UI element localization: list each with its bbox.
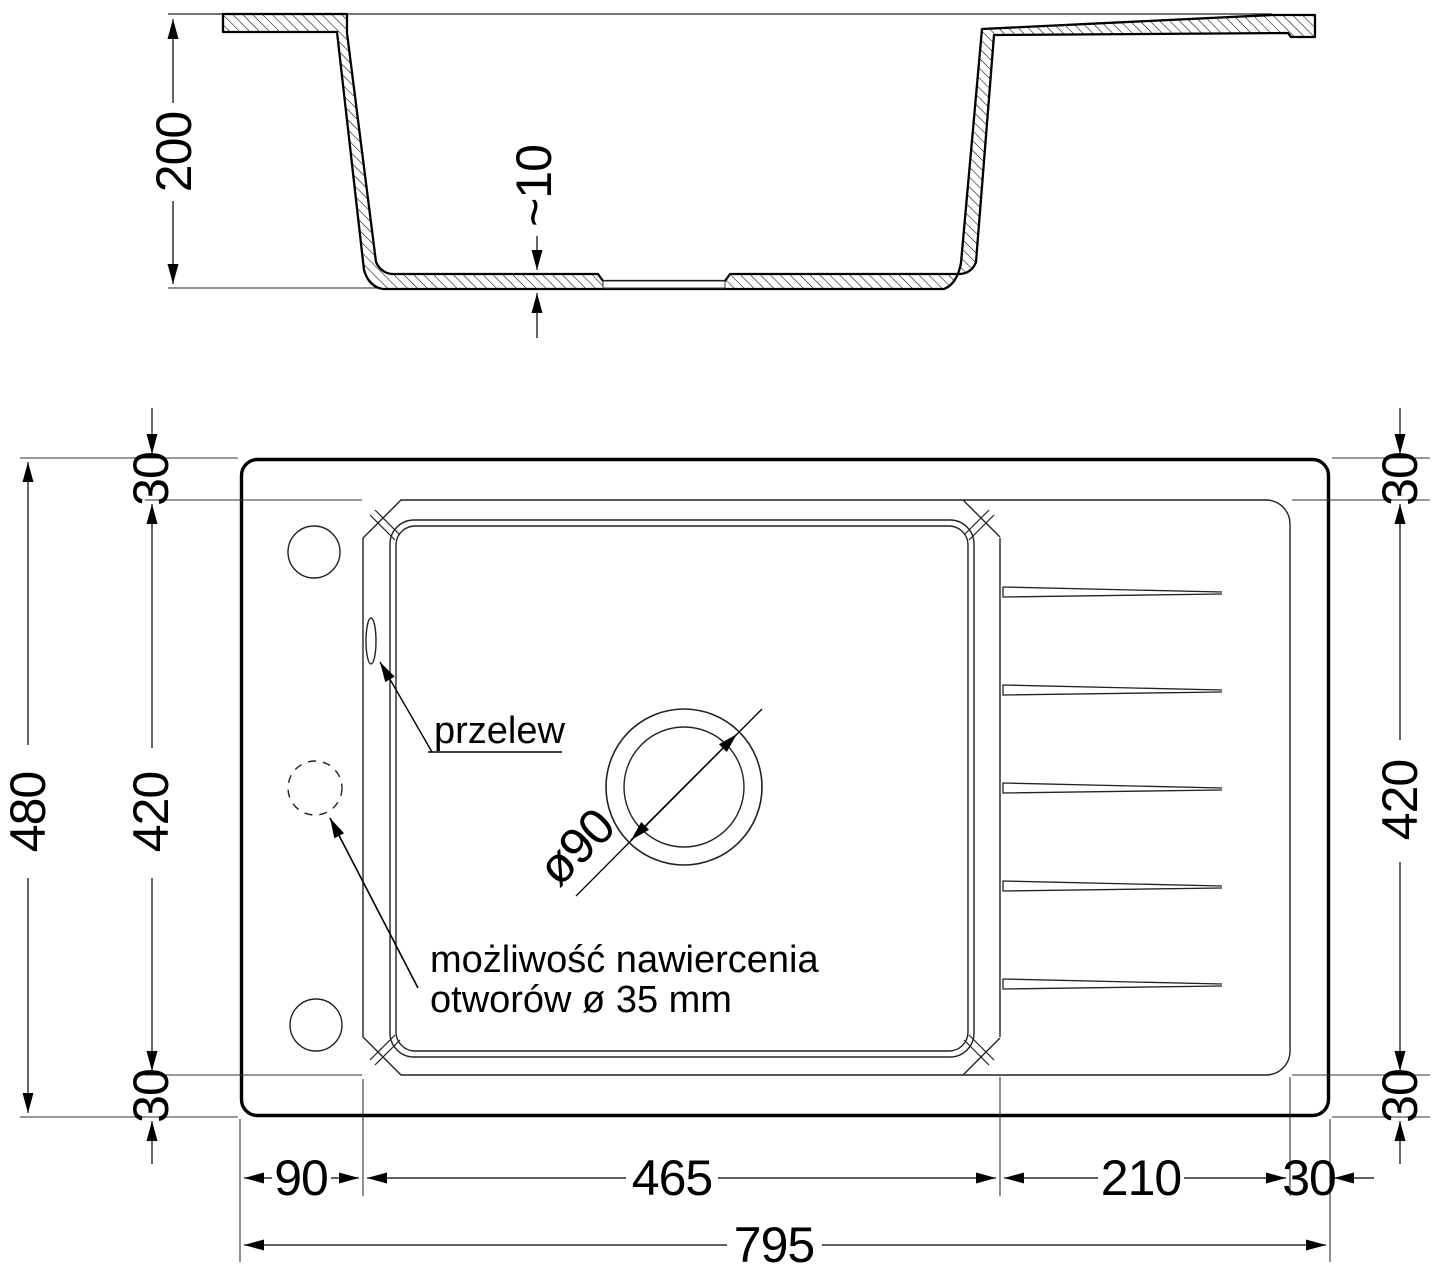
drainboard (1003, 587, 1222, 989)
dim-overall-depth: 480 (0, 462, 56, 1113)
dim-section-depth-text: 200 (146, 112, 202, 192)
drainboard-groove (1003, 587, 1222, 597)
dim-bottom-row: 90 465 210 30 (244, 1150, 1374, 1206)
dim-left-column: 30 420 30 (123, 408, 179, 1164)
overflow-slot (366, 618, 376, 664)
drainboard-groove (1003, 783, 1222, 793)
drainboard-groove (1003, 881, 1222, 891)
section-drain-plate (603, 281, 725, 288)
drainboard-groove (1003, 685, 1222, 695)
dim-section-thickness: ~10 (506, 145, 562, 338)
sink-outer-outline (242, 460, 1329, 1116)
optional-hole-dashed (288, 761, 342, 815)
drill-note-line2: otworów ø 35 mm (430, 979, 732, 1021)
dim-section-depth: 200 (146, 19, 202, 284)
dim-right-margin-bottom-text: 30 (1372, 1069, 1428, 1123)
section-view: 200 ~10 (146, 14, 1315, 338)
faucet-hole (288, 526, 340, 578)
dim-right-margin-text: 30 (1282, 1150, 1336, 1206)
dim-right-column: 30 420 30 (1372, 408, 1428, 1164)
dim-left-inner-depth-text: 420 (123, 772, 179, 852)
dim-drainer-length-text: 210 (1101, 1150, 1181, 1206)
dim-left-margin-bottom-text: 30 (123, 1069, 179, 1123)
drainboard-groove (1003, 979, 1222, 989)
dim-left-margin-top-text: 30 (123, 452, 179, 506)
plan-view: ø90 przelew możliwość nawiercenia otworó… (0, 408, 1430, 1273)
drill-note-line1: możliwość nawiercenia (430, 939, 819, 981)
dim-left-offset-text: 90 (274, 1150, 328, 1206)
extension-lines (20, 458, 1430, 1262)
overflow-annotation: przelew (380, 662, 565, 752)
overflow-label: przelew (434, 710, 565, 752)
dim-right-inner-depth-text: 420 (1372, 760, 1428, 840)
dim-right-margin-top-text: 30 (1372, 452, 1428, 506)
section-sink-profile (223, 14, 1315, 289)
dim-overall-length: 795 (244, 1217, 1326, 1273)
sink-technical-drawing: 200 ~10 (0, 0, 1442, 1287)
dim-overall-length-text: 795 (734, 1217, 814, 1273)
dim-overall-depth-text: 480 (0, 772, 56, 852)
dim-bowl-length-text: 465 (632, 1150, 712, 1206)
accessory-hole (290, 999, 342, 1051)
dim-section-thickness-text: ~10 (506, 145, 562, 227)
